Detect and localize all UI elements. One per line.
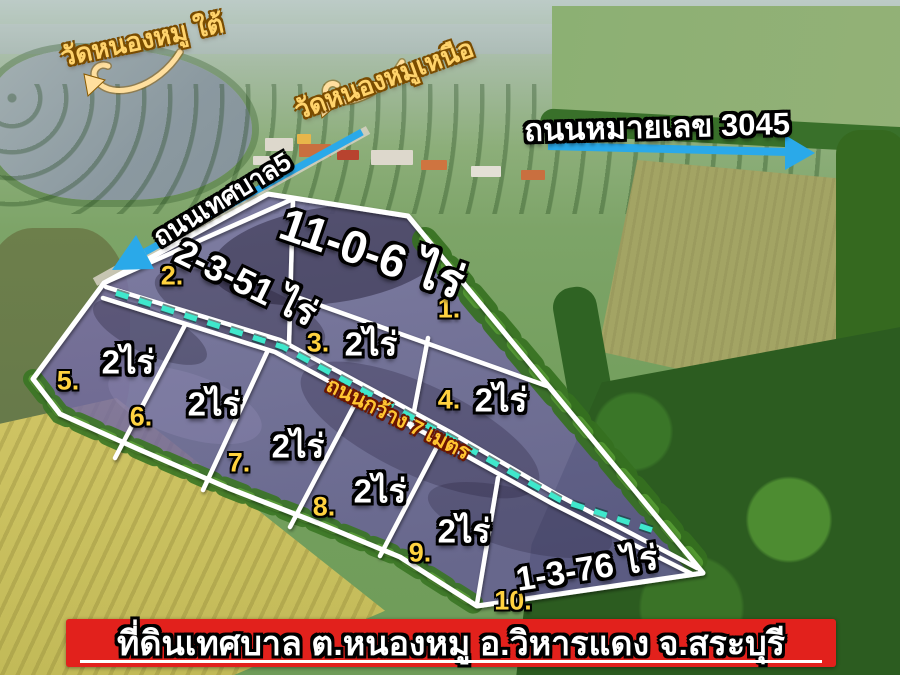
plot-overlay-graphics [0, 0, 900, 675]
plot-number: 7. [228, 450, 251, 477]
plot-area-label: 2ไร่ [438, 515, 491, 548]
plot-area-label: 2ไร่ [272, 430, 325, 463]
plot-number: 8. [313, 494, 336, 521]
plot-number: 6. [130, 404, 153, 431]
highway-3045-label: ถนนหมายเลข 3045 [524, 108, 791, 146]
plot-number: 3. [307, 330, 330, 357]
plot-area-label: 2ไร่ [475, 384, 528, 417]
plot-area-label: 2ไร่ [345, 328, 398, 361]
plot-number: 4. [438, 387, 461, 414]
plot-number: 9. [409, 540, 432, 567]
aerial-land-plot-map: วัดหนองหมู ใต้ วัดหนองหมูเหนือ ถนนเทศบาล… [0, 0, 900, 675]
title-banner: ที่ดินเทศบาล ต.หนองหมู อ.วิหารแดง จ.สระบ… [66, 619, 836, 667]
plot-area-label: 2ไร่ [102, 346, 155, 379]
banner-underline [80, 660, 822, 663]
plot-number: 5. [57, 368, 80, 395]
plot-area-label: 2ไร่ [354, 475, 407, 508]
plot-area-label: 2ไร่ [188, 388, 241, 421]
